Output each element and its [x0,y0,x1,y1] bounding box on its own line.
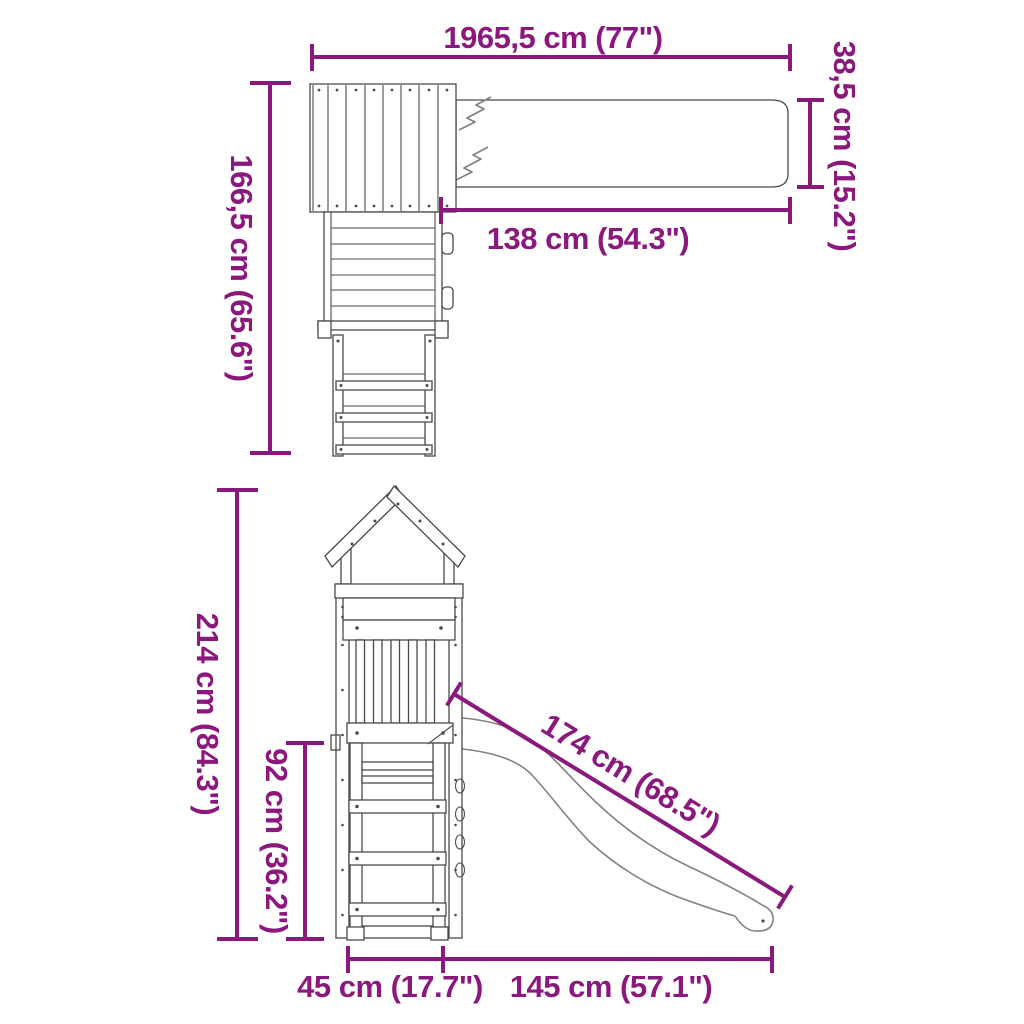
dim-platform-height-label: 92 cm (36.2") [259,748,294,934]
dim-total-height-label: 214 cm (84.3") [190,613,225,815]
balusters [356,640,435,723]
wall-handle [442,233,453,254]
dim-tower-width-label: 45 cm (17.7") [297,969,483,1004]
playhouse-roof-top [310,84,456,212]
base-and-steps-top [318,321,448,456]
top-view: 1965,5 cm (77") 138 cm (54.3") 166,5 cm … [224,20,862,456]
dim-beam-length: 138 cm (54.3") [441,197,790,256]
dimension-diagram: 1965,5 cm (77") 138 cm (54.3") 166,5 cm … [0,0,1024,1024]
dim-tower-width: 45 cm (17.7") [297,946,483,1004]
diagram-canvas: 1965,5 cm (77") 138 cm (54.3") 166,5 cm … [0,0,1024,1024]
dim-slide-reach-label: 145 cm (57.1") [510,969,712,1004]
ladder [347,743,448,940]
swing-beam [456,97,788,187]
dim-slide-length: 174 cm (68.5") [447,683,792,909]
tower [325,486,465,940]
dim-depth: 166,5 cm (65.6") [224,83,291,453]
playhouse-wall-top [324,212,453,322]
wall-handle [442,287,453,309]
front-view: 214 cm (84.3") 92 cm (36.2") 174 cm (68.… [190,486,792,1004]
dim-total-height: 214 cm (84.3") [190,490,258,939]
dim-total-length-label: 1965,5 cm (77") [443,20,662,55]
dim-tick [778,886,792,909]
dim-slide-reach: 145 cm (57.1") [443,946,772,1004]
step-screw-dots [337,340,432,452]
dim-total-length: 1965,5 cm (77") [312,20,790,71]
dim-beam-length-label: 138 cm (54.3") [487,221,689,256]
dim-beam-width-label: 38,5 cm (15.2") [827,41,862,252]
dim-beam-width: 38,5 cm (15.2") [797,41,862,252]
dim-slide-length-label: 174 cm (68.5") [535,706,726,842]
dim-depth-label: 166,5 cm (65.6") [224,154,259,381]
dim-platform-height: 92 cm (36.2") [259,743,324,939]
